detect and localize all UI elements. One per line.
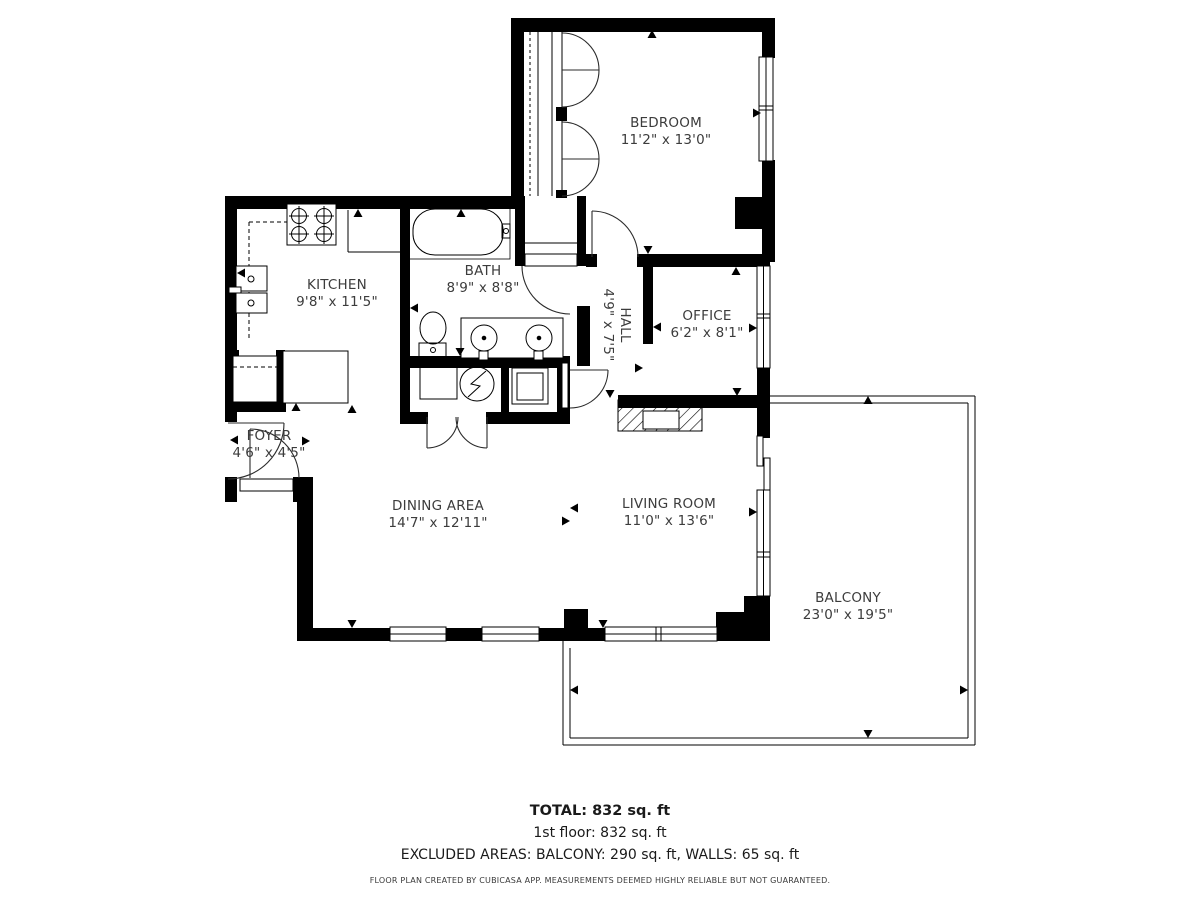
room-dims: 4'6" x 4'5" bbox=[233, 445, 306, 462]
bath-door bbox=[522, 266, 570, 314]
room-label-office: OFFICE 6'2" x 8'1" bbox=[671, 308, 744, 342]
closet-bifold-doors bbox=[562, 33, 599, 196]
refrigerator bbox=[233, 356, 277, 402]
room-name: HALL bbox=[616, 289, 633, 362]
floor-plan-page: BEDROOM 11'2" x 13'0" KITCHEN 9'8" x 11'… bbox=[0, 0, 1200, 900]
room-label-foyer: FOYER 4'6" x 4'5" bbox=[233, 428, 306, 462]
room-label-hall: HALL 4'9" x 7'5" bbox=[599, 289, 633, 362]
summary-footer: TOTAL: 832 sq. ft 1st floor: 832 sq. ft … bbox=[0, 800, 1200, 885]
double-vanity bbox=[461, 318, 563, 360]
room-label-kitchen: KITCHEN 9'8" x 11'5" bbox=[296, 277, 378, 311]
credit-text: FLOOR PLAN CREATED BY CUBICASA APP. MEAS… bbox=[0, 876, 1200, 885]
fireplace bbox=[618, 400, 702, 431]
room-dims: 11'0" x 13'6" bbox=[622, 513, 716, 530]
room-dims: 9'8" x 11'5" bbox=[296, 294, 378, 311]
room-label-bath: BATH 8'9" x 8'8" bbox=[447, 263, 520, 297]
room-dims: 14'7" x 12'11" bbox=[388, 515, 487, 532]
room-label-dining-area: DINING AREA 14'7" x 12'11" bbox=[388, 498, 487, 532]
laundry-fixtures bbox=[420, 366, 548, 404]
room-label-balcony: BALCONY 23'0" x 19'5" bbox=[803, 590, 894, 624]
room-name: OFFICE bbox=[671, 308, 744, 325]
room-dims: 4'9" x 7'5" bbox=[599, 289, 616, 362]
laundry-double-doors bbox=[427, 417, 487, 448]
room-name: BEDROOM bbox=[621, 115, 712, 132]
hall-door bbox=[570, 370, 608, 408]
room-label-living-room: LIVING ROOM 11'0" x 13'6" bbox=[622, 496, 716, 530]
bathtub bbox=[406, 204, 510, 259]
total-area-text: TOTAL: 832 sq. ft bbox=[0, 800, 1200, 822]
bedroom-door bbox=[592, 211, 638, 257]
room-name: BATH bbox=[447, 263, 520, 280]
room-name: BALCONY bbox=[803, 590, 894, 607]
excluded-areas-text: EXCLUDED AREAS: BALCONY: 290 sq. ft, WAL… bbox=[0, 844, 1200, 866]
room-name: DINING AREA bbox=[388, 498, 487, 515]
room-name: FOYER bbox=[233, 428, 306, 445]
room-name: KITCHEN bbox=[296, 277, 378, 294]
room-dims: 23'0" x 19'5" bbox=[803, 607, 894, 624]
washer bbox=[420, 366, 457, 399]
room-dims: 8'9" x 8'8" bbox=[447, 280, 520, 297]
stove bbox=[287, 204, 336, 245]
bedroom-closet bbox=[525, 32, 577, 243]
room-dims: 11'2" x 13'0" bbox=[621, 132, 712, 149]
room-label-bedroom: BEDROOM 11'2" x 13'0" bbox=[621, 115, 712, 149]
first-floor-area-text: 1st floor: 832 sq. ft bbox=[0, 822, 1200, 844]
toilet bbox=[419, 312, 446, 358]
room-name: LIVING ROOM bbox=[622, 496, 716, 513]
floor-plan-drawing bbox=[0, 0, 1200, 900]
room-dims: 6'2" x 8'1" bbox=[671, 325, 744, 342]
kitchen-island bbox=[283, 351, 348, 403]
utility-cabinet bbox=[512, 368, 548, 404]
dryer bbox=[460, 367, 494, 401]
